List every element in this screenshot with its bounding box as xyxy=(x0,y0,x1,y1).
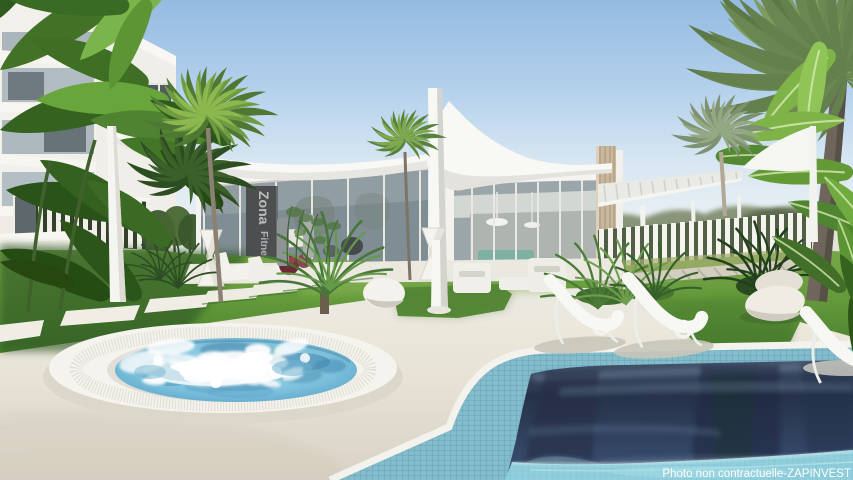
svg-text:Photo non contractuelle-ZAPINV: Photo non contractuelle-ZAPINVEST xyxy=(662,468,851,480)
svg-text:Zona: Zona xyxy=(256,191,272,225)
